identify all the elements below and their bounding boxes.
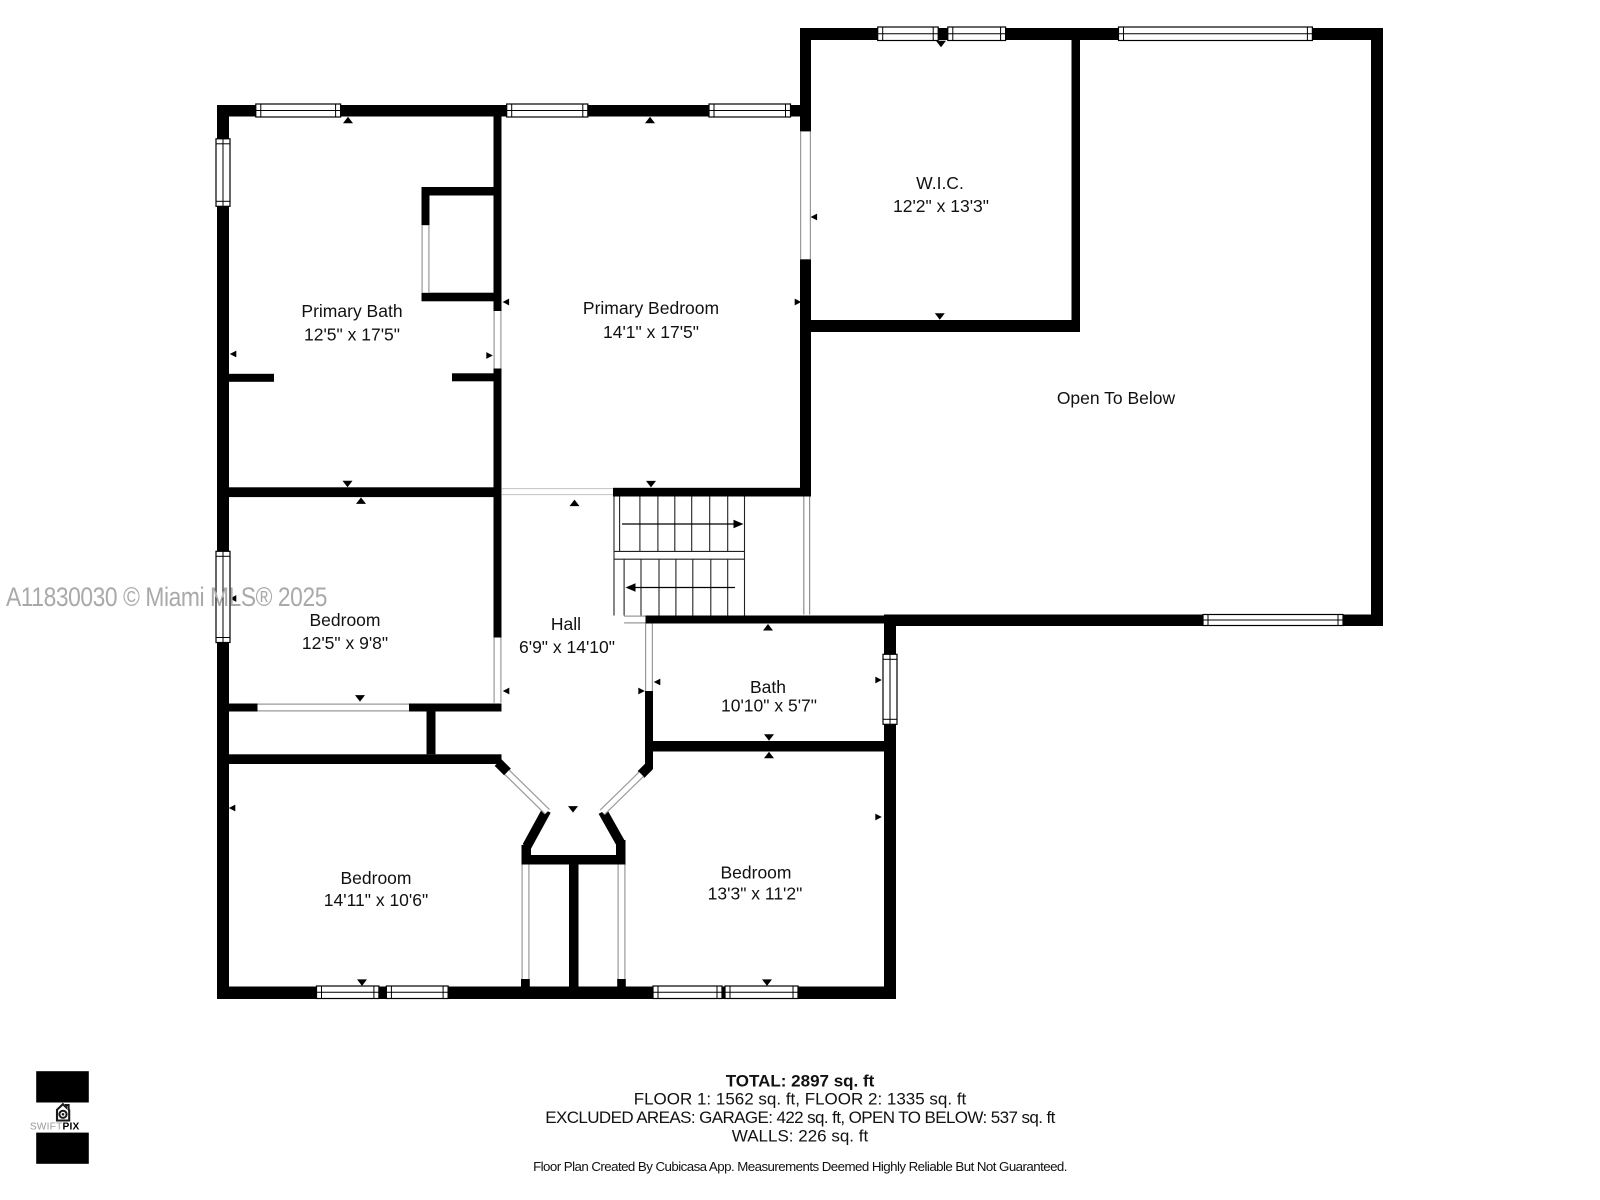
svg-text:14'1" x 17'5": 14'1" x 17'5" bbox=[603, 322, 699, 342]
svg-text:PIX: PIX bbox=[63, 1122, 80, 1133]
svg-text:TOTAL: 2897 sq. ft: TOTAL: 2897 sq. ft bbox=[726, 1072, 875, 1091]
svg-text:Primary Bath: Primary Bath bbox=[301, 301, 402, 321]
svg-text:12'5" x 9'8": 12'5" x 9'8" bbox=[302, 633, 388, 653]
svg-text:Hall: Hall bbox=[551, 614, 581, 634]
svg-text:WALLS: 226 sq. ft: WALLS: 226 sq. ft bbox=[732, 1127, 869, 1146]
svg-text:Open To Below: Open To Below bbox=[1057, 388, 1176, 408]
svg-text:EXCLUDED AREAS: GARAGE: 422 sq: EXCLUDED AREAS: GARAGE: 422 sq. ft, OPEN… bbox=[545, 1108, 1055, 1127]
svg-text:Bath: Bath bbox=[750, 677, 786, 697]
svg-text:Bedroom: Bedroom bbox=[309, 610, 380, 630]
svg-text:SWIFT: SWIFT bbox=[30, 1122, 63, 1133]
svg-text:6'9" x 14'10": 6'9" x 14'10" bbox=[519, 637, 615, 657]
svg-text:Floor Plan Created By Cubicasa: Floor Plan Created By Cubicasa App. Meas… bbox=[533, 1159, 1067, 1174]
svg-text:Primary Bedroom: Primary Bedroom bbox=[583, 298, 719, 318]
svg-text:W.I.C.: W.I.C. bbox=[916, 173, 964, 193]
svg-text:Bedroom: Bedroom bbox=[340, 868, 411, 888]
svg-text:10'10" x 5'7": 10'10" x 5'7" bbox=[721, 696, 817, 716]
svg-text:12'5" x 17'5": 12'5" x 17'5" bbox=[304, 325, 400, 345]
svg-text:Bedroom: Bedroom bbox=[720, 863, 791, 883]
svg-text:A11830030 © Miami MLS® 2025: A11830030 © Miami MLS® 2025 bbox=[6, 582, 327, 612]
svg-text:13'3" x 11'2": 13'3" x 11'2" bbox=[708, 884, 803, 904]
svg-text:14'11" x 10'6": 14'11" x 10'6" bbox=[324, 890, 428, 910]
svg-text:12'2" x 13'3": 12'2" x 13'3" bbox=[893, 196, 989, 216]
svg-text:FLOOR 1: 1562 sq. ft, FLOOR 2:: FLOOR 1: 1562 sq. ft, FLOOR 2: 1335 sq. … bbox=[634, 1090, 967, 1109]
